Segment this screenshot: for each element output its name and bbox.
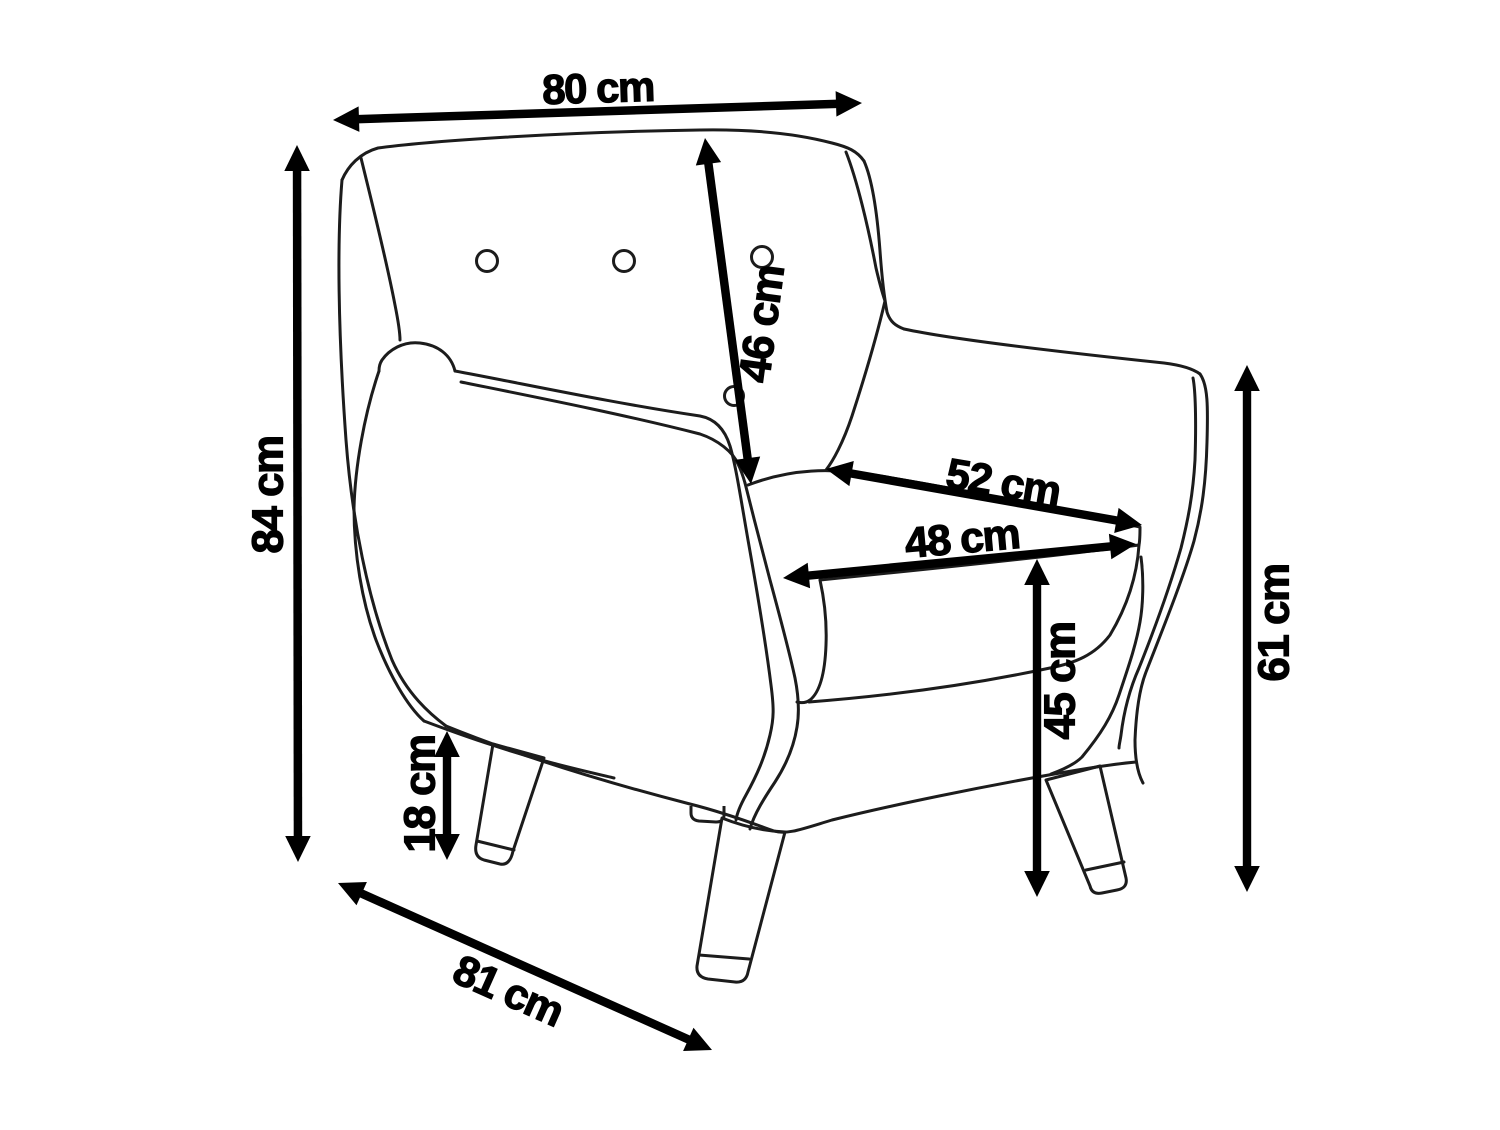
svg-text:45 cm: 45 cm xyxy=(1036,622,1085,739)
svg-text:48 cm: 48 cm xyxy=(903,510,1021,568)
svg-text:84 cm: 84 cm xyxy=(244,436,293,553)
svg-text:61 cm: 61 cm xyxy=(1250,564,1299,681)
svg-text:80 cm: 80 cm xyxy=(541,63,654,113)
svg-text:18 cm: 18 cm xyxy=(396,735,445,852)
